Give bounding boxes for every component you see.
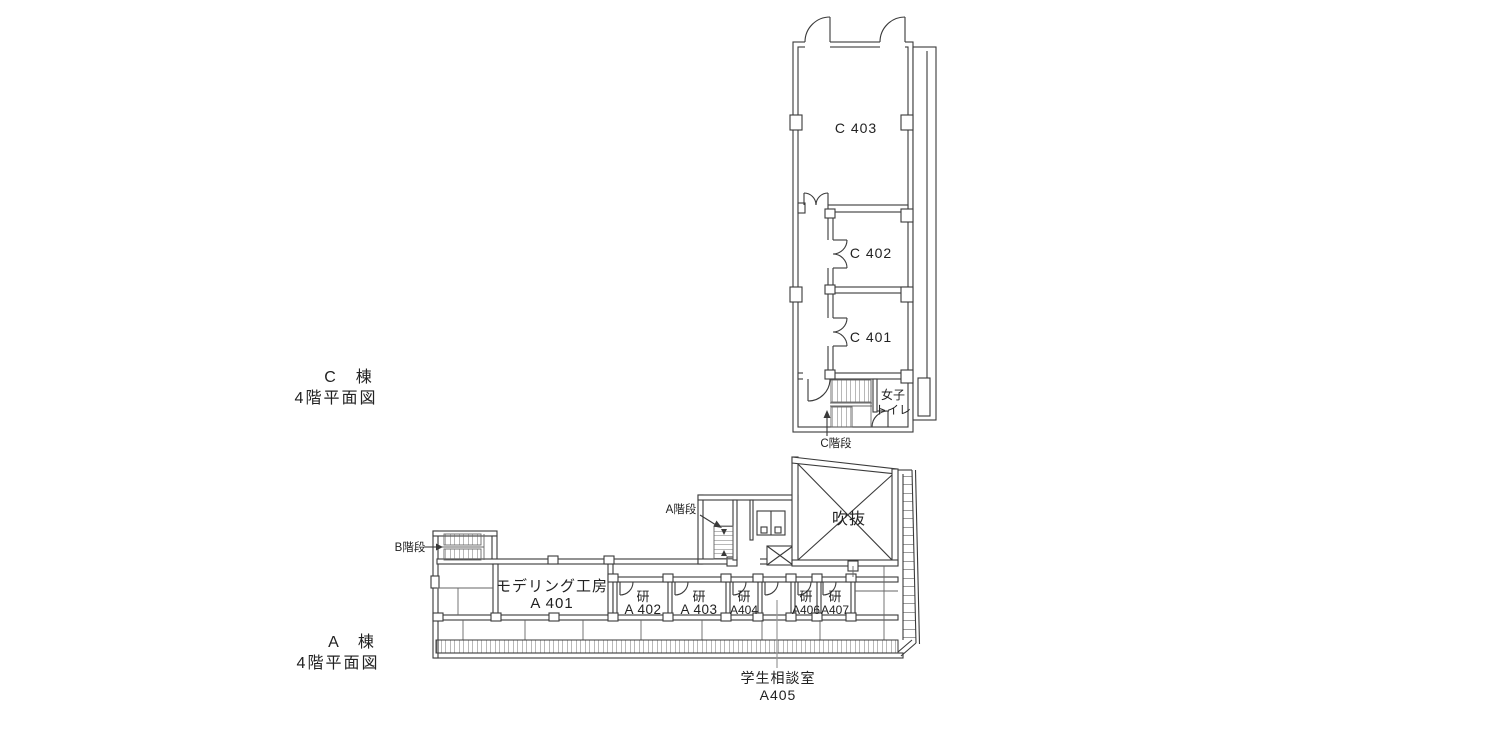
c-wing-title-line1: C 棟 [324,368,374,386]
room-label-c402: C 402 [850,245,892,261]
modeling-room-label-line2: A 401 [530,595,573,612]
c402-c401-wall [828,287,909,293]
a-wing-title-line1: A 棟 [328,633,376,651]
counseling-label-line1: 学生相談室 [741,670,816,686]
a-stair-toilet-cells [757,511,785,535]
toilet-label-line2: トイレ [875,403,911,417]
toilet-label-line1: 女子 [881,387,905,402]
c-wing-title-line2: 4階平面図 [295,389,378,407]
elevator [767,546,793,565]
room-label-c401: C 401 [850,329,892,345]
c-stair-label: C階段 [820,436,852,450]
lab-a406-label-line2: A406 [792,603,820,617]
floor-plan-canvas: C 403 C 402 C 401 女子 トイレ C階段 [0,0,1500,750]
c-wing-plan: C 403 C 402 C 401 女子 トイレ C階段 [790,17,936,450]
lab-a404-label-line1: 研 [737,589,750,604]
page-background [0,0,1500,750]
lab-a406-label-line1: 研 [799,589,812,604]
modeling-room-label-line1: モデリング工房 [496,577,608,595]
room-label-c403: C 403 [835,120,877,136]
lab-a402-label-line2: A 402 [624,602,661,617]
counseling-label-line2: A405 [760,687,797,703]
lab-a403-label-line2: A 403 [680,602,717,617]
b-stair-label: B階段 [395,540,426,554]
lab-a407-label-line2: A407 [821,603,849,617]
atrium-label: 吹抜 [832,510,866,528]
lab-a407-label-line1: 研 [828,589,841,604]
a-wing-title-line2: 4階平面図 [297,654,380,672]
balcony-hatch [436,640,898,653]
lab-a404-label-line2: A404 [730,603,758,617]
b-staircase [441,534,484,560]
a-stair-label: A階段 [666,502,697,516]
